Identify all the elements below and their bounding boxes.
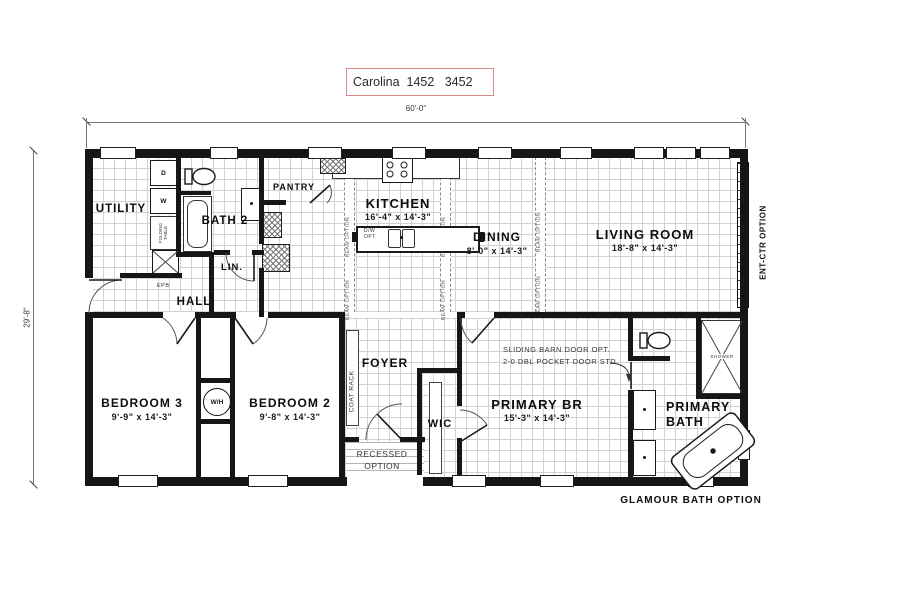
room-label-bedroom3: BEDROOM 3 — [101, 396, 183, 410]
recessed-option-line2: OPTION — [364, 461, 400, 471]
toilet-bowl — [193, 169, 215, 185]
door-arc — [253, 318, 267, 344]
room-label-utility: UTILITY — [96, 203, 146, 215]
room-label-pantry: PANTRY — [273, 182, 315, 192]
burner — [401, 162, 407, 168]
room-label-linen: LIN. — [221, 262, 243, 273]
epb-label: EPB — [157, 283, 170, 289]
burner — [401, 171, 407, 177]
room-label-bath2: BATH 2 — [202, 215, 249, 227]
room-label-bedroom2: BEDROOM 2 — [249, 396, 331, 410]
room-size-dining: 8'-0" x 14'-3" — [467, 246, 528, 256]
room-label-primary-bath-line2: BATH — [666, 415, 704, 429]
burner — [387, 162, 393, 168]
shower-label: SHOWER — [709, 354, 734, 359]
coat-rack-label: COAT RACK — [349, 362, 356, 422]
room-size-bedroom3: 9'-9" x 14'-3" — [112, 412, 173, 422]
room-label-living: LIVING ROOM — [596, 227, 694, 242]
room-size-bedroom2: 9'-8" x 14'-3" — [260, 412, 321, 422]
recessed-option-line1: RECESSED — [357, 449, 408, 459]
room-label-foyer: FOYER — [362, 356, 408, 370]
room-label-primary-br: PRIMARY BR — [491, 397, 583, 412]
plan-linework — [0, 0, 900, 612]
barn-door-note-line1: SLIDING BARN DOOR OPT. — [503, 345, 610, 354]
door-arc — [163, 318, 177, 344]
room-size-living: 18'-8" x 14'-3" — [612, 243, 678, 253]
door-arc — [89, 280, 122, 313]
door-leaf — [235, 318, 253, 344]
room-label-kitchen: KITCHEN — [366, 196, 431, 211]
room-label-primary-bath-line1: PRIMARY — [666, 400, 730, 414]
ent-ctr-option-label: ENT-CTR OPTION — [759, 203, 768, 283]
room-size-primary-br: 15'-3" x 14'-3" — [504, 413, 570, 423]
burner — [387, 171, 393, 177]
toilet-tank — [640, 333, 647, 348]
room-label-wic: WIC — [428, 418, 452, 430]
door-leaf — [472, 318, 494, 343]
barn-door-note-line2: 2-0 DBL POCKET DOOR STD. — [503, 357, 619, 366]
floor-plan-page: Carolina 1452 3452 60'-0" 29'-8" BEAM OP… — [0, 0, 900, 612]
room-label-dining: DINING — [473, 230, 521, 244]
room-size-kitchen: 16'-4" x 14'-3" — [365, 212, 431, 222]
toilet-bowl — [648, 333, 670, 349]
door-arc — [461, 318, 472, 343]
door-leaf — [177, 318, 195, 344]
door-arc — [460, 410, 487, 425]
glamour-bath-option-label: GLAMOUR BATH OPTION — [620, 495, 762, 506]
door-leaf — [460, 425, 487, 442]
door-leaf — [377, 414, 402, 440]
room-label-hall: HALL — [177, 296, 212, 308]
toilet-tank — [185, 169, 192, 184]
